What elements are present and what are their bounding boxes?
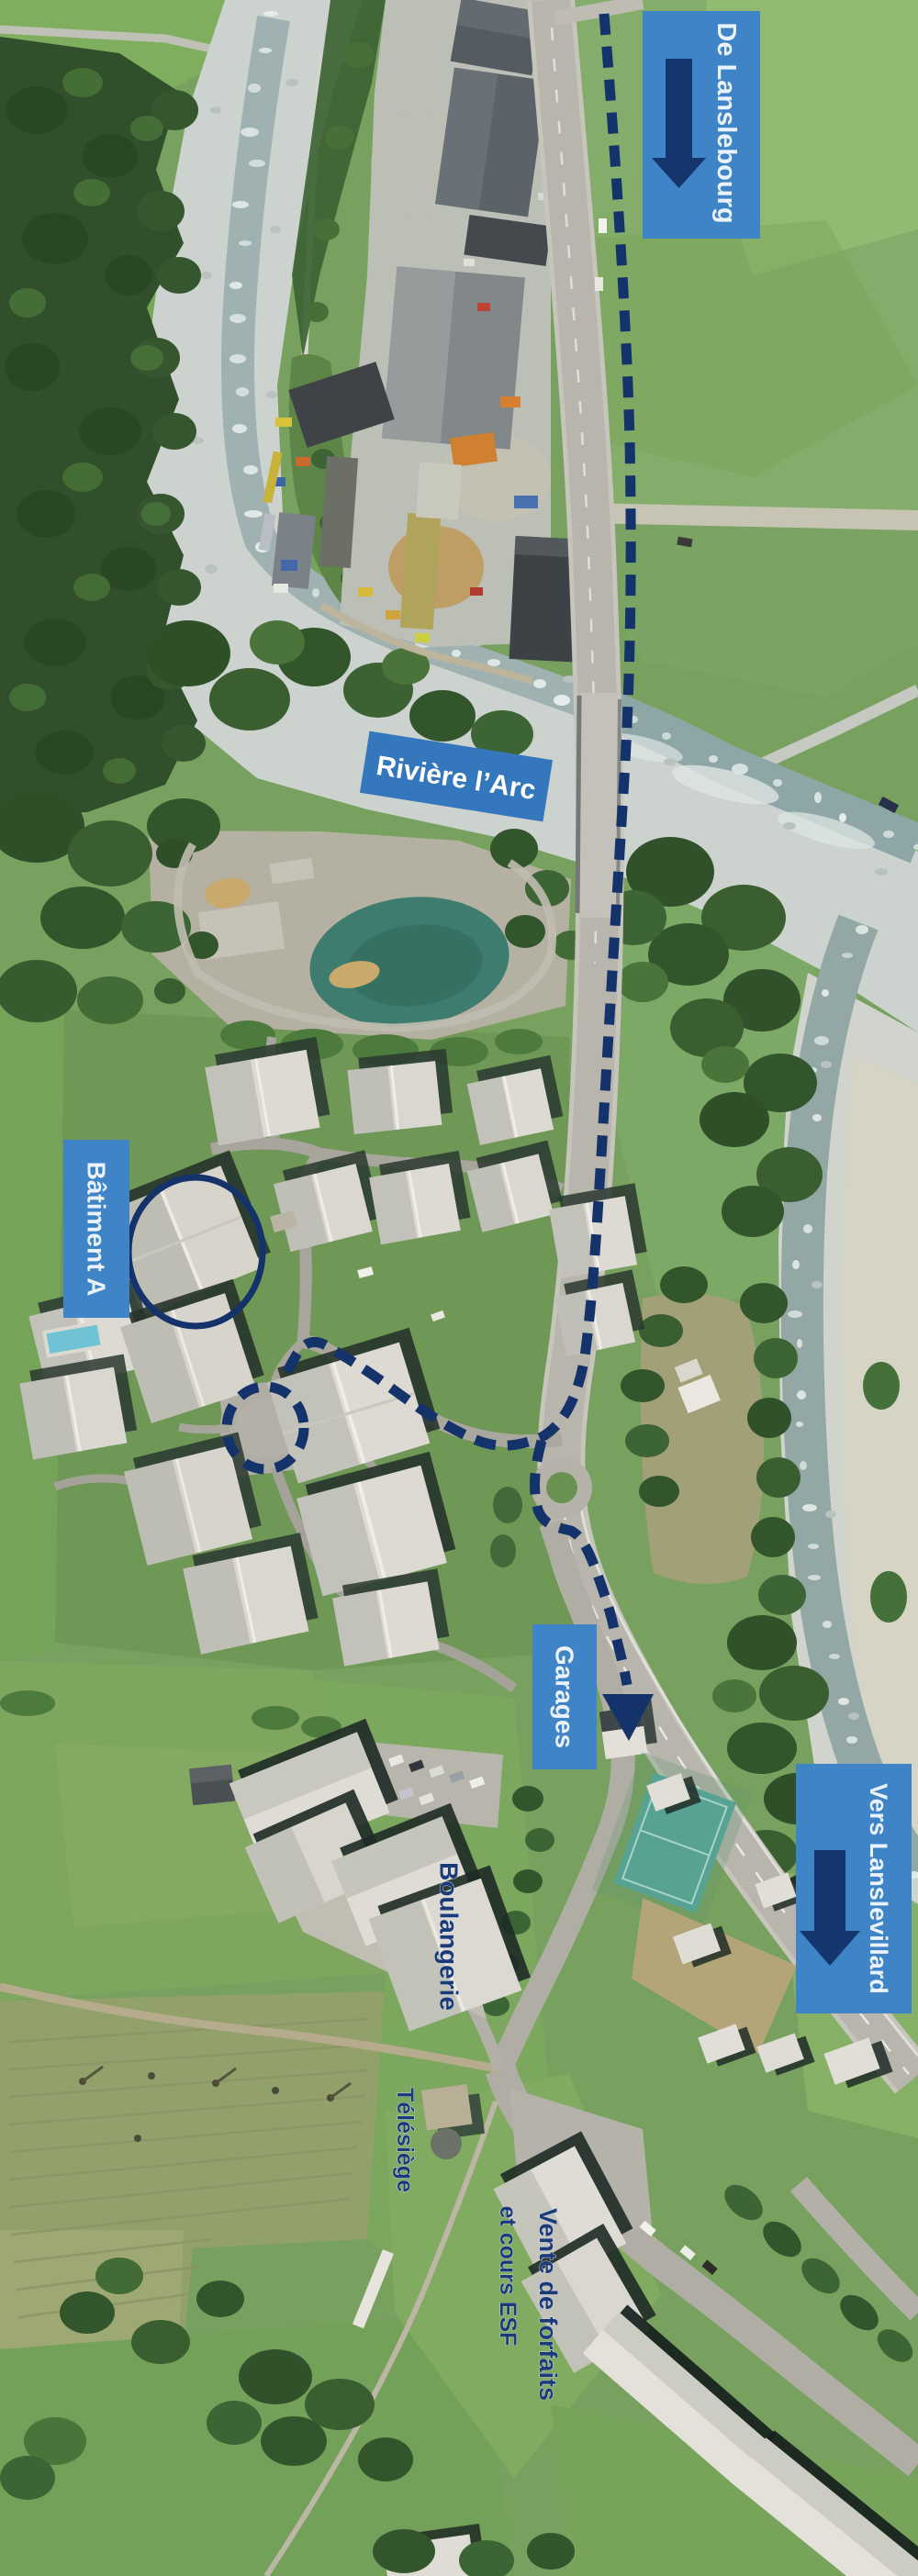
svg-text:Bâtiment A: Bâtiment A bbox=[83, 1162, 111, 1297]
svg-text:Télésiège: Télésiège bbox=[392, 2088, 418, 2192]
svg-text:De Lanslebourg: De Lanslebourg bbox=[711, 22, 741, 223]
svg-text:et cours ESF: et cours ESF bbox=[495, 2206, 521, 2347]
svg-text:Garages: Garages bbox=[551, 1645, 579, 1748]
svg-text:Boulangerie: Boulangerie bbox=[435, 1862, 464, 2011]
svg-text:Vers Lanslevillard: Vers Lanslevillard bbox=[865, 1783, 892, 1994]
svg-text:Vente de forfaits: Vente de forfaits bbox=[534, 2208, 562, 2401]
